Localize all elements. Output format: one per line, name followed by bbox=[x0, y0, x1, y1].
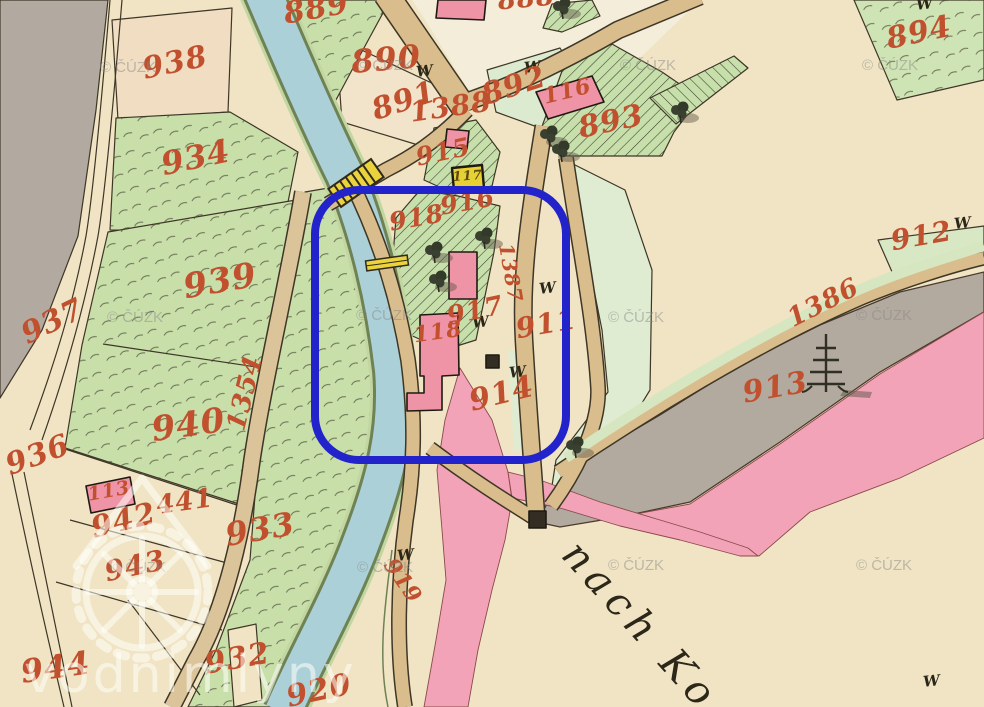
tree-crown bbox=[678, 110, 687, 119]
tree-crown bbox=[482, 236, 491, 245]
building-junction-shed bbox=[486, 355, 499, 368]
tree-trunk bbox=[562, 12, 563, 19]
tree-crown bbox=[432, 250, 441, 259]
cuzk-watermark: © ČÚZK bbox=[856, 307, 912, 324]
building-top-center bbox=[436, 0, 486, 20]
cuzk-watermark: © ČÚZK bbox=[356, 307, 412, 324]
building-916 bbox=[449, 252, 477, 299]
tree-crown bbox=[436, 279, 445, 288]
tree-trunk bbox=[549, 140, 550, 147]
tree-trunk bbox=[484, 242, 485, 249]
tree-trunk bbox=[434, 256, 435, 263]
tree-trunk bbox=[575, 451, 576, 458]
tree-crown bbox=[547, 134, 556, 143]
cadastral-map-canvas[interactable]: WWWWWWWWW 889888894938890892116891138889… bbox=[0, 0, 984, 707]
cuzk-watermark: © ČÚZK bbox=[107, 309, 163, 326]
tree-trunk bbox=[438, 285, 439, 292]
tree-crown bbox=[560, 6, 569, 15]
tree-trunk bbox=[561, 155, 562, 162]
cuzk-watermark: © ČÚZK bbox=[856, 557, 912, 574]
tree-trunk bbox=[680, 116, 681, 123]
cuzk-watermark: © ČÚZK bbox=[620, 57, 676, 74]
cuzk-watermark: © ČÚZK bbox=[100, 59, 156, 76]
vodnimlyny-watermark-text: vodnimlyny bbox=[24, 645, 357, 705]
cuzk-watermark: © ČÚZK bbox=[357, 559, 413, 576]
building-fork-shed bbox=[529, 511, 546, 528]
tree-crown bbox=[559, 149, 568, 158]
cuzk-watermark: © ČÚZK bbox=[608, 309, 664, 326]
map-viewport: WWWWWWWWW 889888894938890892116891138889… bbox=[0, 0, 984, 707]
tree-crown bbox=[573, 445, 582, 454]
parcel-label: 117 bbox=[452, 168, 483, 185]
cuzk-watermark: © ČÚZK bbox=[357, 57, 413, 74]
cuzk-watermark: © ČÚZK bbox=[862, 57, 918, 74]
cuzk-watermark: © ČÚZK bbox=[608, 557, 664, 574]
